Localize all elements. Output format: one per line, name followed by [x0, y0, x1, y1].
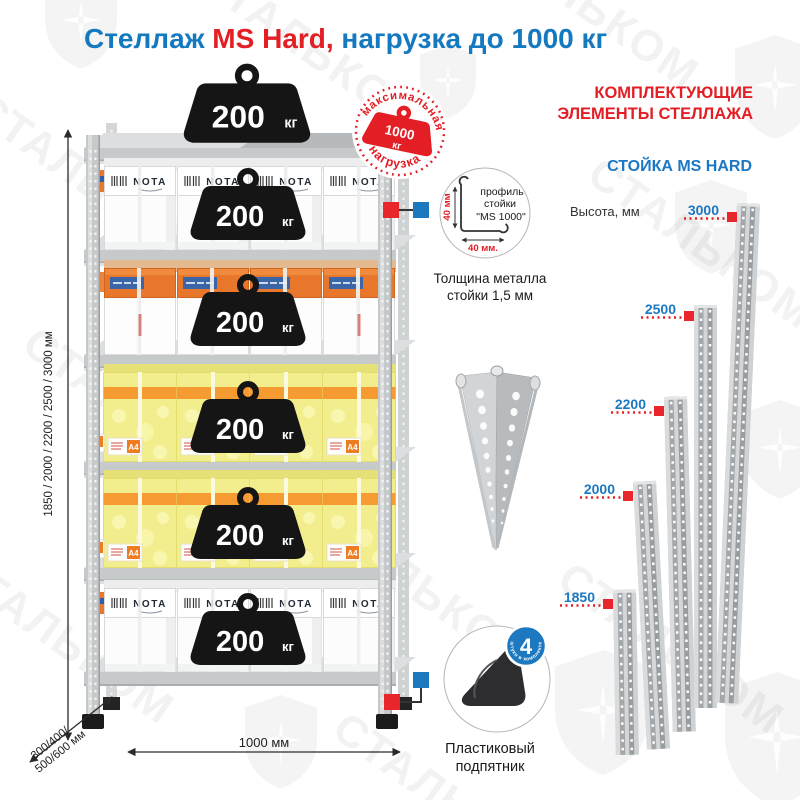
post-height-value: 2200 — [615, 396, 646, 412]
connector-blue-marker — [413, 202, 429, 218]
post-height-label-2000: 2000 — [580, 481, 633, 501]
posts-fan — [613, 203, 760, 755]
foot-count-badge: 4 штуки в комплекте — [505, 625, 548, 668]
weight-value: 200 — [216, 201, 264, 233]
post-height-marker — [684, 311, 694, 321]
post-height-marker — [603, 599, 613, 609]
connector-red-marker — [383, 202, 399, 218]
post-height-marker — [654, 406, 664, 416]
profile-detail-circle: 40 мм 40 мм. профиль стойки "MS 1000" — [440, 168, 530, 258]
post-height-value: 1850 — [564, 589, 595, 605]
svg-text:Стеллаж MS Hard, нагрузка до 1: Стеллаж MS Hard, нагрузка до 1000 кг — [84, 23, 607, 54]
weight-unit: кг — [282, 427, 295, 442]
post-heading: СТОЙКА MS HARD — [607, 156, 752, 175]
width-dimension-label: 1000 мм — [239, 735, 289, 750]
thickness-caption-line2: стойки 1,5 мм — [447, 288, 533, 303]
foot-caption: Пластиковый подпятник — [445, 741, 535, 775]
post-height-marker — [727, 212, 737, 222]
page-title: Стеллаж MS Hard, нагрузка до 1000 кг — [84, 23, 607, 54]
foot-caption-line1: Пластиковый — [445, 741, 535, 757]
rack-front-left-post — [86, 135, 100, 722]
post-height-value: 2500 — [645, 301, 676, 317]
title-prefix: Стеллаж — [84, 23, 212, 54]
foot-detail-circle: 4 штуки в комплекте — [444, 625, 550, 733]
infographic-svg: NOTA A4 — [0, 0, 800, 800]
foot-caption-line2: подпятник — [456, 759, 526, 775]
profile-dim-horizontal: 40 мм. — [468, 243, 498, 254]
profile-text-line2: стойки — [484, 198, 516, 210]
connector-red-marker — [384, 694, 400, 710]
post-height-value: 3000 — [688, 202, 719, 218]
rack-front-right-foot — [376, 714, 398, 729]
post-2200 — [664, 396, 696, 731]
height-axis-label: Высота, мм — [570, 204, 640, 219]
weight-value: 200 — [216, 520, 264, 552]
post-height-marker — [623, 491, 633, 501]
components-heading-line1: КОМПЛЕКТУЮЩИЕ — [594, 84, 753, 102]
profile-dim-vertical: 40 мм — [442, 193, 453, 220]
post-2500 — [694, 305, 717, 708]
weight-unit: кг — [282, 320, 295, 335]
weight-unit: кг — [282, 533, 295, 548]
weight-value: 200 — [216, 307, 264, 339]
thickness-caption: Толщина металла стойки 1,5 мм — [434, 271, 547, 303]
post-height-label-2200: 2200 — [611, 396, 664, 416]
weight-unit: кг — [282, 639, 295, 654]
thickness-caption-line1: Толщина металла — [434, 271, 547, 286]
weight-value: 200 — [212, 98, 265, 134]
weight-unit: кг — [284, 115, 297, 131]
height-dimension-label: 1850 / 2000 / 2200 / 2500 / 3000 мм — [43, 331, 55, 516]
post-height-value: 2000 — [584, 481, 615, 497]
post-height-label-2500: 2500 — [641, 301, 694, 321]
title-model: MS Hard, — [212, 23, 333, 54]
weight-icon: 200 кг — [184, 67, 310, 143]
post-1850 — [613, 590, 639, 755]
rack-back-left-foot — [103, 697, 120, 710]
profile-text-line3: "MS 1000" — [476, 211, 526, 223]
infographic-canvas: NOTA A4 — [0, 0, 800, 800]
profile-text-line1: профиль — [480, 186, 524, 198]
components-heading: КОМПЛЕКТУЮЩИЕ ЭЛЕМЕНТЫ СТЕЛЛАЖА — [557, 84, 753, 123]
foot-badge-count: 4 — [520, 634, 533, 659]
rack-front-left-foot — [82, 714, 104, 729]
weight-value: 200 — [216, 626, 264, 658]
post-3d-view — [456, 366, 540, 550]
weight-value: 200 — [216, 414, 264, 446]
components-heading-line2: ЭЛЕМЕНТЫ СТЕЛЛАЖА — [557, 105, 753, 123]
connector-blue-marker — [413, 672, 429, 688]
rack-front-right-post — [378, 135, 392, 722]
title-suffix: нагрузка до 1000 кг — [334, 23, 608, 54]
weight-unit: кг — [282, 214, 295, 229]
